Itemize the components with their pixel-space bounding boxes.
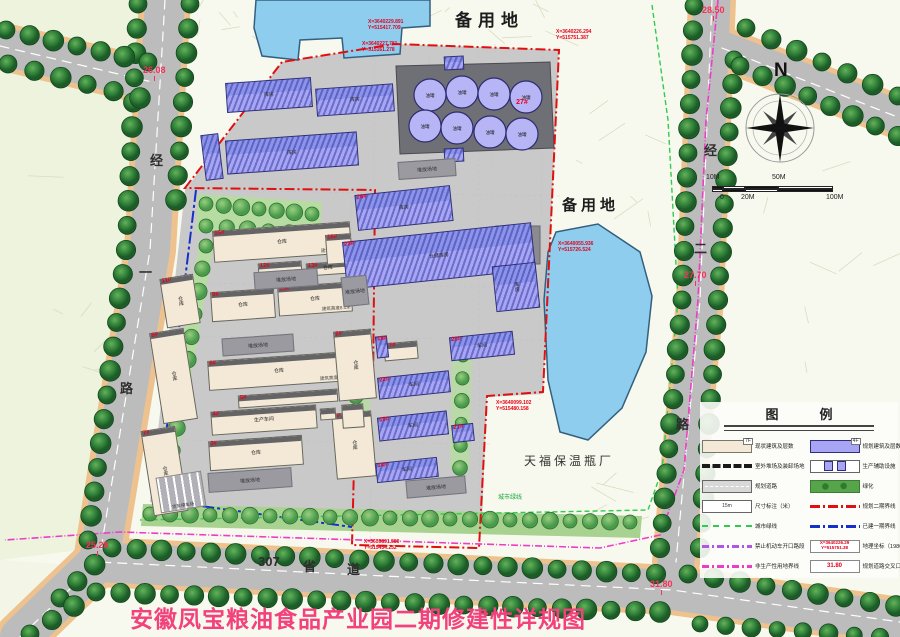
- tree-icon: [151, 540, 172, 561]
- site-plan-canvas: 油罐油罐油罐油罐油罐油罐油罐油罐27# 15#仓库建筑高度8.1米12#13#仓…: [0, 0, 900, 637]
- tree-icon: [711, 267, 729, 285]
- scale-segment: [778, 189, 833, 192]
- tree-icon: [542, 512, 559, 529]
- tree-icon: [474, 557, 492, 575]
- tree-icon: [201, 543, 220, 562]
- tree-icon: [350, 550, 369, 569]
- dimension-swatch: 15m: [702, 500, 752, 513]
- legend-row: 7F现状建筑及层数: [702, 436, 805, 456]
- tank-group-id: 27#: [516, 99, 528, 106]
- tree-icon: [653, 514, 671, 532]
- tree-icon: [679, 144, 697, 162]
- tree-icon: [455, 417, 467, 429]
- green-line-swatch: [702, 525, 752, 527]
- scale-label: 50M: [772, 174, 786, 181]
- floors-tag: 4F: [851, 438, 861, 445]
- tree-icon: [685, 0, 703, 15]
- tree-icon: [305, 207, 319, 221]
- tree-icon: [179, 19, 198, 38]
- tree-icon: [100, 360, 121, 381]
- tree-icon: [111, 583, 130, 602]
- scale-segment: [723, 189, 745, 192]
- tree-icon: [422, 510, 439, 527]
- tree-icon: [176, 43, 197, 64]
- tree-icon: [326, 550, 344, 568]
- tree-icon: [162, 507, 177, 522]
- tree-icon: [216, 198, 231, 213]
- tree-icon: [114, 46, 135, 67]
- tree-icon: [673, 265, 694, 286]
- tree-icon: [456, 372, 469, 385]
- tree-icon: [219, 220, 234, 235]
- tree-icon: [0, 55, 17, 73]
- tree-icon: [87, 583, 105, 601]
- legend-row: X=3640226.29 Y=515751.38地理坐标（1980西安坐标）: [810, 536, 900, 556]
- tree-icon: [454, 393, 469, 408]
- tree-icon: [323, 510, 337, 524]
- tree-icon: [680, 94, 699, 113]
- nonproduction-line-swatch: [702, 565, 752, 568]
- tree-icon: [503, 513, 517, 527]
- tree-icon: [233, 199, 250, 216]
- tree-icon: [225, 544, 246, 565]
- tree-icon: [85, 482, 104, 501]
- tree-icon: [81, 505, 102, 526]
- tree-icon: [657, 464, 676, 483]
- aux-facility-swatch: [810, 460, 860, 473]
- tree-icon: [674, 241, 693, 260]
- tree-icon: [383, 511, 397, 525]
- oil-tank-label: 油罐: [426, 92, 435, 99]
- greening-swatch: [810, 480, 860, 493]
- tree-icon: [563, 514, 577, 528]
- legend-label: 绿化: [863, 482, 874, 490]
- geo-coord-swatch: X=3640226.29 Y=515751.38: [810, 540, 860, 553]
- tree-icon: [109, 288, 130, 309]
- tree-icon: [683, 21, 702, 40]
- tree-icon: [171, 116, 192, 137]
- tree-icon: [199, 239, 213, 253]
- planned-road-swatch: [702, 480, 752, 493]
- tree-icon: [650, 602, 671, 623]
- tree-icon: [203, 508, 217, 522]
- tree-icon: [457, 350, 469, 362]
- tree-icon: [482, 511, 499, 528]
- legend-row: 规划道路: [702, 476, 805, 496]
- outdoor-yard-swatch: [702, 464, 752, 468]
- legend-label: 现状建筑及层数: [755, 442, 794, 450]
- tree-icon: [692, 616, 708, 632]
- tree-icon: [251, 546, 269, 564]
- legend-row: 城市绿线: [702, 516, 805, 536]
- tree-icon: [169, 419, 186, 436]
- tree-icon: [158, 488, 175, 505]
- tree-icon: [275, 547, 294, 566]
- tree-icon: [116, 240, 135, 259]
- scale-label: 0: [720, 194, 724, 201]
- tree-icon: [660, 440, 678, 458]
- tree-icon: [348, 436, 361, 449]
- existing-building-swatch: 7F: [702, 440, 752, 453]
- tree-icon: [143, 507, 157, 521]
- oil-tank-label: 油罐: [518, 131, 527, 138]
- tree-icon: [704, 365, 722, 383]
- tree-icon: [713, 218, 732, 237]
- plan-title: 安徽凤宝粮油食品产业园二期修建性详规图: [130, 600, 586, 634]
- tree-icon: [199, 219, 213, 233]
- tree-icon: [182, 506, 199, 523]
- tree-icon: [0, 21, 15, 39]
- tree-icon: [707, 315, 726, 334]
- tree-icon: [190, 283, 207, 300]
- tree-icon: [261, 224, 275, 238]
- tree-icon: [347, 459, 362, 474]
- tree-icon: [84, 554, 105, 575]
- tree-icon: [453, 461, 468, 476]
- tree-icon: [127, 539, 146, 558]
- planned-building-swatch: 4F: [810, 440, 860, 453]
- tree-icon: [130, 88, 151, 109]
- legend-title: 图 例: [714, 404, 898, 423]
- compass-star-icon: [738, 62, 828, 172]
- tree-icon: [98, 386, 116, 404]
- tree-icon: [103, 539, 121, 557]
- tree-icon: [602, 601, 620, 619]
- tree-icon: [50, 67, 71, 88]
- tree-icon: [400, 553, 418, 571]
- tree-icon: [349, 414, 361, 426]
- tree-icon: [25, 61, 44, 80]
- legend-row: 室外堆场及装卸场地: [702, 456, 805, 476]
- tree-icon: [68, 572, 87, 591]
- oil-tank-label: 油罐: [458, 89, 467, 96]
- tree-icon: [682, 71, 700, 89]
- scale-label: 10M: [706, 174, 720, 181]
- scale-label: 20M: [741, 194, 755, 201]
- tree-icon: [20, 26, 39, 45]
- tree-icon: [860, 592, 879, 611]
- scale-bar: 10M50M020M100M: [700, 172, 900, 206]
- tree-icon: [626, 601, 645, 620]
- legend-row: 已建一期界线: [810, 516, 900, 536]
- tree-icon: [118, 216, 136, 234]
- tree-icon: [650, 538, 669, 557]
- tree-icon: [286, 204, 303, 221]
- legend-row: 规划二期界线: [810, 496, 900, 516]
- tree-icon: [195, 261, 210, 276]
- legend-rule: [724, 425, 874, 431]
- legend-row: 绿化: [810, 476, 900, 496]
- tree-icon: [679, 565, 697, 583]
- tree-icon: [737, 19, 755, 37]
- tree-icon: [462, 512, 477, 527]
- tree-icon: [177, 543, 195, 561]
- tree-icon: [402, 511, 417, 526]
- elevation-swatch: 31.80: [810, 560, 860, 573]
- tree-icon: [677, 168, 696, 187]
- legend-label: 尺寸标注（米）: [755, 502, 794, 510]
- tree-icon: [162, 466, 177, 481]
- tree-icon: [623, 515, 637, 529]
- tree-icon: [454, 439, 467, 452]
- scale-segment: [745, 189, 778, 192]
- tree-icon: [282, 225, 297, 240]
- tree-icon: [835, 589, 853, 607]
- tree-icon: [742, 618, 761, 637]
- tree-icon: [239, 221, 256, 238]
- tree-icon: [90, 433, 111, 454]
- legend-label: 规划道路交叉口标高: [863, 562, 900, 570]
- tree-icon: [769, 622, 785, 637]
- tree-icon: [794, 623, 811, 637]
- tree-icon: [188, 307, 202, 321]
- legend-row: 生产辅助设施: [810, 456, 900, 476]
- tree-icon: [177, 375, 191, 389]
- tree-icon: [424, 554, 443, 573]
- tree-icon: [78, 75, 96, 93]
- tree-icon: [43, 30, 64, 51]
- tree-icon: [173, 92, 192, 111]
- legend-label: 已建一期界线: [863, 522, 896, 530]
- oil-tank-label: 油罐: [421, 123, 430, 130]
- legend-row: 31.80规划道路交叉口标高: [810, 556, 900, 576]
- floors-tag: 7F: [743, 438, 753, 445]
- tree-icon: [362, 509, 379, 526]
- tree-icon: [166, 190, 187, 211]
- tree-icon: [602, 513, 619, 530]
- tree-icon: [708, 290, 727, 309]
- tree-icon: [757, 577, 775, 595]
- tree-icon: [222, 508, 237, 523]
- tree-icon: [838, 64, 857, 83]
- scale-segment: [712, 189, 723, 192]
- tree-icon: [646, 564, 665, 583]
- phase1-line-swatch: [810, 525, 860, 528]
- tree-icon: [302, 508, 319, 525]
- legend-label: 非生产性用地界线: [755, 562, 799, 570]
- tree-icon: [173, 397, 188, 412]
- tree-icon: [808, 584, 829, 605]
- tree-icon: [184, 329, 199, 344]
- tree-icon: [42, 610, 61, 629]
- tree-icon: [122, 117, 143, 138]
- legend: 图 例 7F现状建筑及层数室外堆场及装卸场地规划道路15m尺寸标注（米）城市绿线…: [700, 402, 898, 578]
- tree-icon: [89, 459, 107, 477]
- scale-label: 100M: [826, 194, 844, 201]
- tree-icon: [269, 203, 284, 218]
- tree-icon: [104, 82, 123, 101]
- tree-icon: [448, 554, 469, 575]
- tree-icon: [113, 264, 132, 283]
- compass-rose: N: [738, 62, 828, 172]
- tree-icon: [118, 190, 139, 211]
- tree-icon: [664, 390, 683, 409]
- tree-icon: [122, 143, 140, 161]
- tree-icon: [682, 45, 703, 66]
- legend-label: 规划二期界线: [863, 502, 896, 510]
- oil-tank-label: 油罐: [490, 91, 499, 98]
- tree-icon: [104, 337, 123, 356]
- tree-icon: [720, 123, 738, 141]
- legend-right-column: 4F规划建筑及层数生产辅助设施绿化规划二期界线已建一期界线X=3640226.2…: [810, 436, 900, 576]
- tree-icon: [252, 202, 266, 216]
- tree-icon: [762, 30, 781, 49]
- tree-icon: [299, 547, 320, 568]
- tree-icon: [94, 409, 113, 428]
- tree-icon: [862, 74, 883, 95]
- tree-icon: [108, 314, 126, 332]
- oil-tank-label: 油罐: [486, 129, 495, 136]
- tree-icon: [679, 118, 700, 139]
- tree-icon: [168, 166, 187, 185]
- tree-icon: [127, 19, 146, 38]
- legend-row: 禁止机动车开口路段: [702, 536, 805, 556]
- tree-icon: [179, 351, 196, 368]
- tree-icon: [443, 512, 457, 526]
- legend-row: 非生产性用地界线: [702, 556, 805, 576]
- tree-icon: [572, 561, 591, 580]
- legend-row: 4F规划建筑及层数: [810, 436, 900, 456]
- tree-icon: [242, 507, 259, 524]
- legend-label: 室外堆场及装卸场地: [755, 462, 805, 470]
- tree-icon: [282, 509, 297, 524]
- tree-icon: [120, 167, 139, 186]
- tree-icon: [176, 69, 194, 87]
- tree-icon: [661, 414, 682, 435]
- tree-icon: [522, 513, 537, 528]
- legend-left-column: 7F现状建筑及层数室外堆场及装卸场地规划道路15m尺寸标注（米）城市绿线禁止机动…: [702, 436, 805, 576]
- tree-icon: [670, 315, 689, 334]
- tree-icon: [342, 510, 357, 525]
- tree-icon: [718, 146, 737, 165]
- tree-icon: [582, 514, 597, 529]
- legend-label: 生产辅助设施: [863, 462, 896, 470]
- legend-label: 地理坐标（1980西安坐标）: [863, 542, 900, 550]
- tree-icon: [302, 226, 319, 243]
- tree-icon: [350, 367, 363, 380]
- phase2-line-swatch: [810, 505, 860, 508]
- oil-tank-label: 油罐: [453, 125, 462, 132]
- tree-icon: [68, 37, 86, 55]
- tree-icon: [654, 488, 675, 509]
- no-vehicle-line-swatch: [702, 545, 752, 548]
- tree-icon: [199, 197, 213, 211]
- tree-icon: [842, 106, 863, 127]
- tree-icon: [374, 551, 395, 572]
- tree-icon: [622, 564, 640, 582]
- tree-icon: [786, 40, 807, 61]
- tree-icon: [125, 69, 143, 87]
- legend-label: 规划道路: [755, 482, 777, 490]
- tree-icon: [548, 560, 566, 578]
- legend-label: 城市绿线: [755, 522, 777, 530]
- tree-icon: [79, 531, 97, 549]
- tree-icon: [139, 53, 157, 71]
- tree-icon: [166, 444, 180, 458]
- tree-icon: [717, 617, 734, 634]
- tree-icon: [522, 558, 543, 579]
- tree-icon: [596, 561, 617, 582]
- tree-icon: [64, 596, 85, 617]
- tree-icon: [498, 557, 517, 576]
- legend-label: 禁止机动车开口路段: [755, 542, 805, 550]
- legend-label: 规划建筑及层数: [863, 442, 900, 450]
- tree-icon: [711, 242, 732, 263]
- tree-icon: [782, 580, 801, 599]
- tree-icon: [348, 389, 363, 404]
- tree-icon: [666, 365, 684, 383]
- tree-icon: [263, 509, 277, 523]
- tree-icon: [673, 291, 691, 309]
- tree-icon: [171, 142, 189, 160]
- legend-row: 15m尺寸标注（米）: [702, 496, 805, 516]
- tree-icon: [351, 344, 363, 356]
- tree-icon: [866, 117, 884, 135]
- tree-icon: [91, 42, 110, 61]
- tree-icon: [676, 218, 694, 236]
- tree-icon: [704, 339, 725, 360]
- tree-icon: [667, 339, 688, 360]
- tree-icon: [676, 192, 697, 213]
